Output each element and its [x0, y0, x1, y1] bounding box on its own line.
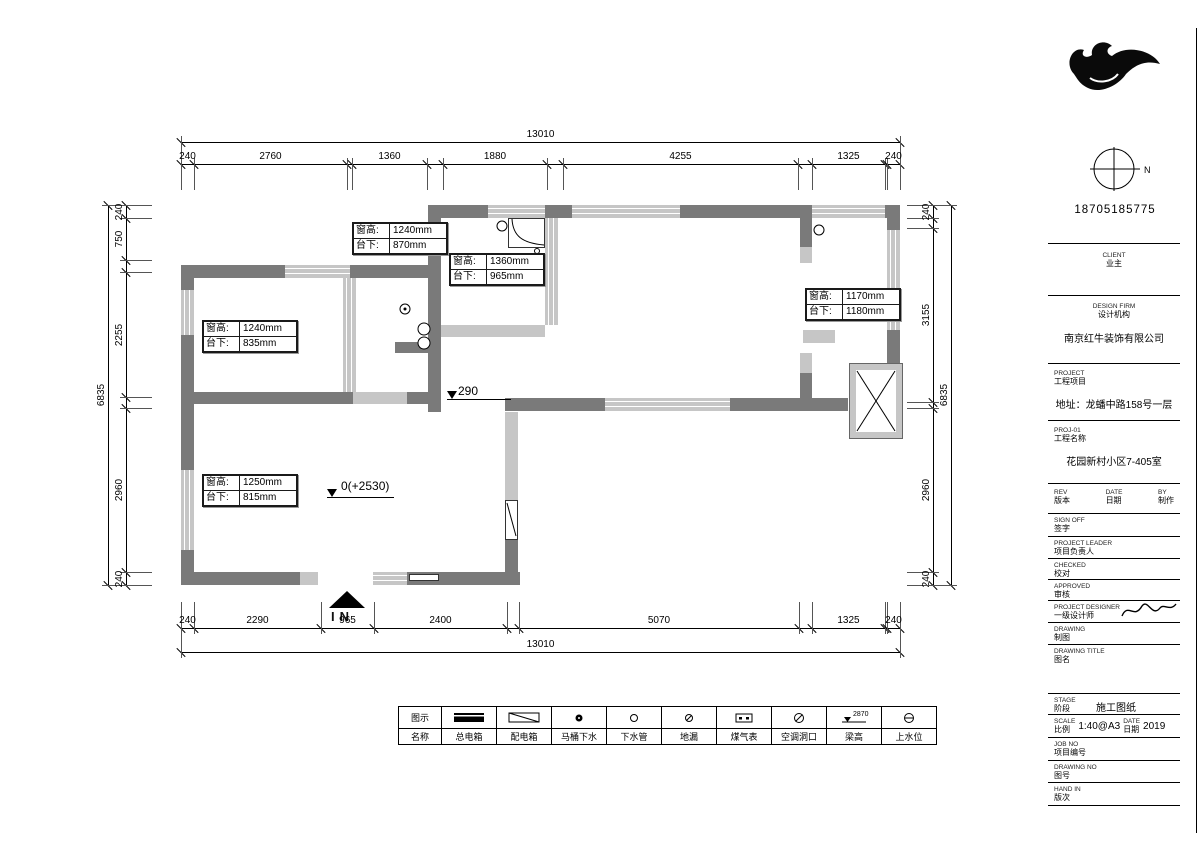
field-label-zh: 图名	[1054, 655, 1174, 665]
title-block-rule	[1048, 805, 1180, 806]
wall-segment	[885, 205, 900, 218]
legend-item-label: 配电箱	[497, 728, 551, 744]
stage-value: 施工图纸	[1096, 699, 1136, 714]
field-label-zh: 版本	[1054, 496, 1070, 506]
window-spec-key: 窗高:	[807, 290, 843, 304]
title-block-field: DRAWING NO图号	[1054, 764, 1174, 781]
field-label-zh: 工程名称	[1054, 434, 1174, 444]
window-spec-row: 台下:870mm	[354, 238, 446, 253]
dim-ext-top-segments	[443, 158, 444, 190]
field-label-en: BY	[1158, 489, 1174, 496]
window	[812, 205, 885, 218]
level-marker-text: 290	[458, 384, 478, 398]
field-label-en: SCALE	[1054, 718, 1075, 725]
legend-header-column: 图示名称	[399, 707, 441, 744]
window-spec-key: 台下:	[451, 270, 487, 284]
legend-item: 总电箱	[441, 707, 496, 744]
title-block-rule	[1048, 536, 1180, 537]
title-block: 红牛装饰 N CLIENT业主DESIGN FIRM设计机构南京红牛装饰有限公司…	[1048, 0, 1180, 860]
wall-segment	[441, 205, 488, 218]
designer-signature	[1120, 598, 1178, 624]
dim-value-bottom-total: 13010	[517, 638, 565, 650]
field-label-en: DESIGN FIRM	[1054, 303, 1174, 310]
field-label-zh: 签字	[1054, 524, 1174, 534]
title-block-field: CHECKED校对	[1054, 562, 1174, 579]
drain-point-icon	[814, 225, 824, 235]
wall-segment	[505, 398, 605, 411]
title-block-rule	[1048, 243, 1180, 244]
title-block-col: BY制作	[1158, 489, 1174, 506]
field-label-zh: 工程项目	[1054, 377, 1174, 387]
drain-pipe-icon	[616, 709, 652, 727]
legend-item-label: 梁高	[827, 728, 881, 744]
dim-value-bottom-segments: 240	[870, 614, 918, 626]
field-label-en: REV	[1054, 489, 1070, 496]
window-spec-value: 870mm	[390, 239, 446, 253]
title-block-field: DRAWING TITLE图名	[1054, 648, 1174, 665]
distribution-box-icon	[506, 709, 542, 727]
field-label-en: APPROVED	[1054, 583, 1174, 590]
dim-ext-right-segments	[907, 408, 939, 409]
floor-drain-icon	[671, 709, 707, 727]
title-block-rule	[1048, 644, 1180, 645]
gas-point-icon	[497, 221, 507, 231]
legend-item: 空调洞口	[771, 707, 826, 744]
legend-item: 配电箱	[496, 707, 551, 744]
dim-value-top-segments: 1325	[825, 150, 873, 162]
dim-ext-left-segments	[120, 397, 152, 398]
partition	[441, 325, 545, 337]
window-spec-value: 1240mm	[240, 322, 296, 336]
field-label-en: PROJ-01	[1054, 427, 1174, 434]
dim-ext-top-segments	[347, 158, 348, 190]
window	[181, 290, 194, 335]
window-spec-row: 台下:815mm	[204, 490, 296, 505]
dim-value-top-segments: 240	[870, 150, 918, 162]
legend-item: 2870梁高	[826, 707, 881, 744]
dim-ext-top-segments	[900, 158, 901, 190]
floor-drain-icon	[404, 308, 407, 311]
title-block-field: CLIENT业主	[1054, 252, 1174, 269]
window-spec-label: 窗高:1170mm台下:1180mm	[805, 288, 901, 321]
dim-ext-top-segments	[194, 158, 195, 190]
dim-ext-bottom-segments	[519, 602, 520, 634]
title-block-cols: REV版本DATE日期BY制作	[1054, 489, 1174, 506]
window-spec-row: 窗高:1360mm	[451, 255, 543, 269]
dim-value-right-segments: 3155	[920, 291, 932, 339]
field-label-zh: 图号	[1054, 771, 1174, 781]
level-marker-icon	[327, 489, 337, 497]
field-label-zh: 制作	[1158, 496, 1174, 506]
window	[572, 205, 680, 218]
wall-segment	[181, 335, 194, 470]
svg-text:2870: 2870	[853, 711, 869, 718]
gas-meter-icon	[726, 709, 762, 727]
field-label-en: DRAWING NO	[1054, 764, 1174, 771]
wall-segment	[545, 205, 572, 218]
legend-item-label: 空调洞口	[772, 728, 826, 744]
legend-item-label: 上水位	[882, 728, 936, 744]
dim-ext-top-segments	[798, 158, 799, 190]
field-label-zh: 设计机构	[1054, 310, 1174, 320]
field-label-en: PROJECT	[1054, 370, 1174, 377]
legend-symbol-cell	[442, 707, 496, 728]
dim-value-top-segments: 2760	[247, 150, 295, 162]
title-block-rule	[1048, 483, 1180, 484]
scale-value: 1:40@A3	[1078, 721, 1120, 732]
dim-value-bottom-segments: 2290	[234, 614, 282, 626]
title-block-rule	[1048, 714, 1180, 715]
window-spec-value: 1170mm	[843, 290, 899, 304]
title-block-value: 地址：龙蟠中路158号一层	[1050, 396, 1178, 411]
entry-arrow-icon	[329, 591, 365, 608]
field-label-en: DATE	[1123, 718, 1140, 725]
title-block-value: 南京红牛装饰有限公司	[1050, 330, 1178, 345]
window	[181, 470, 194, 550]
water-supply-icon	[891, 709, 927, 727]
legend-symbol-cell	[552, 707, 606, 728]
dim-ext-bottom-segments	[374, 602, 375, 634]
dim-value-top-segments: 4255	[657, 150, 705, 162]
sheet-border	[1196, 28, 1197, 833]
dim-ext-left-segments	[120, 408, 152, 409]
field-label-en: SIGN OFF	[1054, 517, 1174, 524]
toilet-drain-icon	[561, 709, 597, 727]
title-block-field: JOB NO项目编号	[1054, 741, 1174, 758]
date-label: DATE日期	[1123, 718, 1140, 735]
title-block-rule	[1048, 737, 1180, 738]
ac-opening-icon	[781, 709, 817, 727]
dim-value-left-segments: 750	[113, 215, 125, 263]
window-spec-value: 1360mm	[487, 255, 543, 269]
dim-value-top-segments: 1360	[366, 150, 414, 162]
field-label-zh: 日期	[1123, 725, 1140, 735]
window-spec-row: 台下:835mm	[204, 336, 296, 351]
field-label-zh: 日期	[1106, 496, 1123, 506]
title-block-rule	[1048, 782, 1180, 783]
legend-symbol-cell	[717, 707, 771, 728]
legend-symbol-cell	[607, 707, 661, 728]
window-spec-value: 1240mm	[390, 224, 446, 238]
dim-line-left-total	[108, 205, 109, 585]
field-label-zh: 项目编号	[1054, 748, 1174, 758]
window-spec-key: 窗高:	[451, 255, 487, 269]
drawing-sheet: 2900(+2530) IN 1301024027601360188042551…	[0, 0, 1200, 860]
bull-logo-icon	[1060, 34, 1170, 100]
wall-segment	[505, 540, 518, 575]
field-label-en: HAND IN	[1054, 786, 1174, 793]
window-spec-label: 窗高:1240mm台下:835mm	[202, 320, 298, 353]
legend-item: 马桶下水	[551, 707, 606, 744]
dim-ext-top-segments	[812, 158, 813, 190]
legend-item-label: 总电箱	[442, 728, 496, 744]
wall-segment	[181, 572, 300, 585]
dim-value-top-segments: 240	[164, 150, 212, 162]
dim-ext-bottom-total	[181, 626, 182, 658]
title-block-rule	[1048, 760, 1180, 761]
field-label-zh: 制图	[1054, 633, 1174, 643]
window-spec-key: 窗高:	[354, 224, 390, 238]
window-spec-key: 台下:	[354, 239, 390, 253]
title-block-field: PROJECT LEADER项目负责人	[1054, 540, 1174, 557]
legend-item-label: 下水管	[607, 728, 661, 744]
dim-ext-top-segments	[427, 158, 428, 190]
legend-table: 图示名称总电箱配电箱马桶下水下水管地漏煤气表空调洞口2870梁高上水位	[398, 706, 937, 745]
dim-ext-right-total	[925, 205, 957, 206]
title-block-rule	[1048, 420, 1180, 421]
legend-item: 地漏	[661, 707, 716, 744]
legend-header-symbol: 图示	[399, 707, 441, 728]
window	[488, 205, 545, 218]
window-spec-key: 台下:	[204, 491, 240, 505]
main-electric-box-icon	[451, 709, 487, 727]
partition	[505, 412, 518, 500]
dim-ext-bottom-segments	[507, 602, 508, 634]
dim-value-bottom-segments: 240	[164, 614, 212, 626]
dim-value-top-total: 13010	[517, 128, 565, 140]
field-label-zh: 比例	[1054, 725, 1075, 735]
dim-value-left-segments: 240	[113, 555, 125, 603]
title-block-col: DATE日期	[1106, 489, 1123, 506]
field-label-en: JOB NO	[1054, 741, 1174, 748]
window-spec-key: 窗高:	[204, 476, 240, 490]
dim-value-left-segments: 2255	[113, 311, 125, 359]
phone-number: 18705185775	[1050, 204, 1180, 216]
compass-north-label: N	[1144, 165, 1151, 175]
dim-value-right-total: 6835	[938, 371, 950, 419]
window	[373, 572, 407, 585]
field-label-en: CLIENT	[1054, 252, 1174, 259]
legend-item-label: 马桶下水	[552, 728, 606, 744]
bath-cabinet	[395, 342, 428, 353]
title-block-rule	[1048, 622, 1180, 623]
scale-label: SCALE比例	[1054, 718, 1075, 735]
window-panel	[505, 500, 518, 540]
field-label-zh: 项目负责人	[1054, 547, 1174, 557]
window-spec-key: 窗高:	[204, 322, 240, 336]
partition	[343, 278, 356, 392]
title-block-col: REV版本	[1054, 489, 1070, 506]
wall-pier	[800, 218, 812, 247]
title-block-rule	[1048, 693, 1180, 694]
window-spec-row: 台下:1180mm	[807, 304, 899, 319]
window-spec-key: 台下:	[807, 305, 843, 319]
legend-symbol-cell	[882, 707, 936, 728]
dim-ext-top-segments	[352, 158, 353, 190]
dim-ext-top-segments	[563, 158, 564, 190]
window	[285, 265, 350, 278]
wall-segment	[680, 205, 812, 218]
dim-ext-right-total	[925, 585, 957, 586]
title-block-field: HAND IN版次	[1054, 786, 1174, 803]
dim-value-bottom-segments: 2400	[417, 614, 465, 626]
dim-ext-right-segments	[907, 402, 939, 403]
field-label-zh: 业主	[1054, 259, 1174, 269]
partition	[545, 218, 558, 325]
wall-segment	[181, 278, 194, 290]
dim-ext-bottom-total	[900, 626, 901, 658]
partition	[353, 392, 407, 404]
title-block-rule	[1048, 558, 1180, 559]
field-label-en: DRAWING TITLE	[1054, 648, 1174, 655]
field-label-zh: 校对	[1054, 569, 1174, 579]
title-block-rule	[1048, 513, 1180, 514]
legend-item: 上水位	[881, 707, 936, 744]
dim-line-top-total	[181, 142, 900, 143]
title-block-field: DRAWING制图	[1054, 626, 1174, 643]
field-label-en: DRAWING	[1054, 626, 1174, 633]
window-spec-label: 窗高:1250mm台下:815mm	[202, 474, 298, 507]
kitchen-counter	[508, 218, 545, 248]
dim-value-right-segments: 2960	[920, 466, 932, 514]
wall-segment	[887, 218, 900, 230]
legend-symbol-cell: 2870	[827, 707, 881, 728]
dim-line-top-segments	[181, 164, 900, 165]
floor-drain-icon	[400, 304, 410, 314]
dim-value-left-total: 6835	[95, 371, 107, 419]
wall-pier	[800, 373, 812, 398]
window-spec-row: 台下:965mm	[451, 269, 543, 284]
title-block-field: DESIGN FIRM设计机构	[1054, 303, 1174, 320]
dim-ext-bottom-segments	[799, 602, 800, 634]
dim-value-top-segments: 1880	[471, 150, 519, 162]
dim-value-left-segments: 2960	[113, 466, 125, 514]
legend-symbol-cell	[772, 707, 826, 728]
wall-pier	[800, 353, 812, 373]
dim-ext-left-segments	[120, 272, 152, 273]
field-label-zh: 版次	[1054, 793, 1174, 803]
window-spec-label: 窗高:1360mm台下:965mm	[449, 253, 545, 286]
window-spec-value: 835mm	[240, 337, 296, 351]
window-spec-value: 1180mm	[843, 305, 899, 319]
field-label-en: PROJECT LEADER	[1054, 540, 1174, 547]
legend-item: 煤气表	[716, 707, 771, 744]
window-spec-label: 窗高:1240mm台下:870mm	[352, 222, 448, 255]
dim-line-bottom-segments	[181, 628, 900, 629]
wall-segment	[181, 265, 285, 278]
beam-height-icon: 2870	[836, 709, 872, 727]
legend-symbol-cell	[497, 707, 551, 728]
date-value: 2019	[1143, 721, 1165, 732]
legend-symbol-cell	[662, 707, 716, 728]
title-block-field: PROJ-01工程名称	[1054, 427, 1174, 444]
legend-item: 下水管	[606, 707, 661, 744]
shoe-cabinet	[409, 574, 439, 581]
level-marker-icon	[447, 391, 457, 399]
window-spec-row: 窗高:1250mm	[204, 476, 296, 490]
dim-value-bottom-segments: 965	[324, 614, 372, 626]
dim-ext-top-segments	[547, 158, 548, 190]
window-spec-row: 窗高:1240mm	[354, 224, 446, 238]
wall-segment	[730, 398, 848, 411]
title-block-field: SIGN OFF签字	[1054, 517, 1174, 534]
field-label-en: CHECKED	[1054, 562, 1174, 569]
dim-line-right-total	[951, 205, 952, 585]
window-spec-value: 815mm	[240, 491, 296, 505]
title-block-value: 花园新村小区7-405室	[1050, 453, 1178, 468]
window-spec-row: 窗高:1170mm	[807, 290, 899, 304]
title-block-field: PROJECT工程项目	[1054, 370, 1174, 387]
dim-line-right-segments	[933, 205, 934, 585]
legend-header-name: 名称	[399, 728, 441, 744]
window-spec-key: 台下:	[204, 337, 240, 351]
compass-icon: N	[1090, 146, 1154, 192]
dim-value-bottom-segments: 5070	[635, 614, 683, 626]
dim-ext-top-segments	[887, 158, 888, 190]
field-label-en: DATE	[1106, 489, 1123, 496]
window-sill	[803, 330, 835, 343]
window-spec-value: 965mm	[487, 270, 543, 284]
level-marker-text: 0(+2530)	[341, 479, 389, 493]
wall-pier	[800, 247, 812, 263]
legend-item-label: 地漏	[662, 728, 716, 744]
dim-value-bottom-segments: 1325	[825, 614, 873, 626]
scale-date-row: SCALE比例1:40@A3DATE日期2019	[1054, 718, 1178, 735]
dim-ext-top-segments	[181, 158, 182, 190]
window-spec-value: 1250mm	[240, 476, 296, 490]
window	[605, 398, 730, 411]
wall-segment	[194, 392, 353, 404]
dim-ext-bottom-segments	[812, 602, 813, 634]
title-block-rule	[1048, 295, 1180, 296]
dim-ext-bottom-segments	[321, 602, 322, 634]
elevator-shaft	[850, 364, 902, 438]
title-block-rule	[1048, 363, 1180, 364]
title-block-rule	[1048, 579, 1180, 580]
window-spec-row: 窗高:1240mm	[204, 322, 296, 336]
dim-value-right-segments: 240	[920, 188, 932, 236]
dim-value-right-segments: 240	[920, 555, 932, 603]
wall-cap	[300, 572, 318, 585]
legend-item-label: 煤气表	[717, 728, 771, 744]
dim-line-bottom-total	[181, 652, 900, 653]
